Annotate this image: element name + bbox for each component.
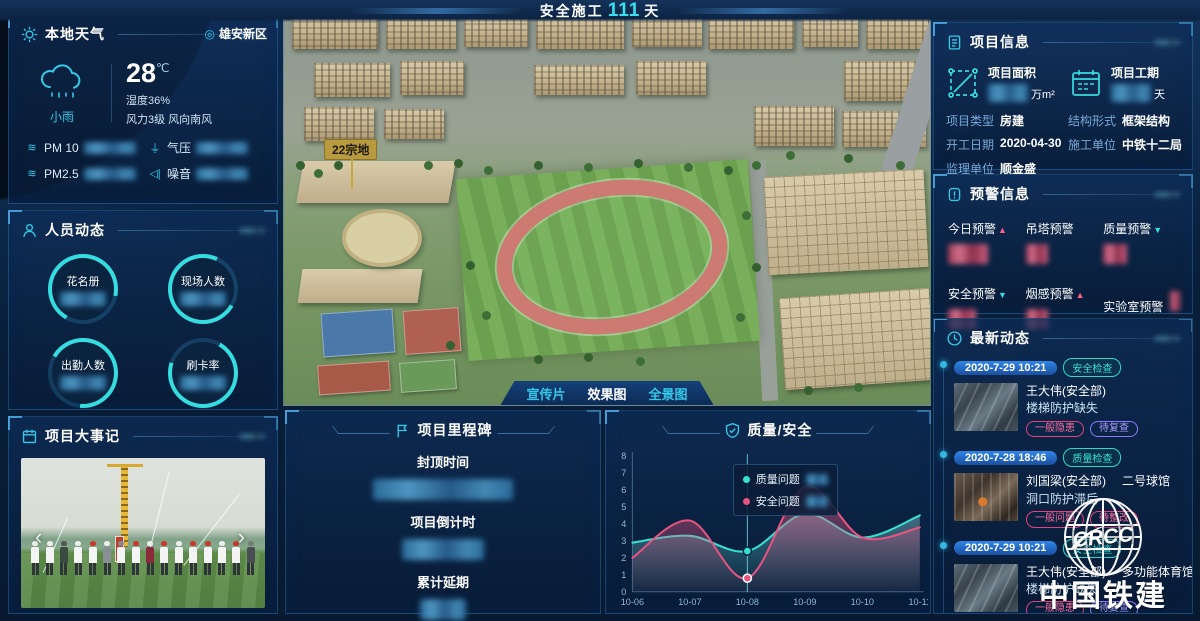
- location-pin-icon: ◎: [205, 27, 215, 41]
- news-title: 最新动态: [970, 328, 1030, 348]
- group-of-people: [31, 541, 256, 583]
- metric-noise: ◁|噪音: [148, 165, 265, 182]
- redacted-value: [806, 496, 828, 507]
- weather-panel: 本地天气 ◎ 雄安新区 小雨 28℃ 湿度36% 风力3级 风向南风 ≋PM 1…: [8, 14, 278, 204]
- header-decoration-right: [677, 8, 850, 14]
- news-category-badge: 质量检查: [1063, 448, 1121, 467]
- quality-safety-chart[interactable]: 01234567810-0610-0710-0810-0910-1010-11 …: [608, 444, 928, 612]
- news-tag-status: 待复查: [1090, 421, 1138, 438]
- metric-pm10: ≋PM 10: [25, 139, 142, 156]
- news-time-badge: 2020-7-28 18:46: [954, 451, 1057, 465]
- redacted-value: [1111, 84, 1151, 102]
- sports-court: [399, 359, 457, 393]
- safe-days-count: 111: [604, 0, 645, 21]
- info-row-contractor: 施工单位中铁十二局: [1068, 136, 1184, 153]
- alert-quality: 质量预警▼: [1103, 220, 1182, 269]
- wind-label: 风力3级 风向南风: [126, 111, 212, 127]
- tower-crane: [121, 464, 128, 547]
- redacted-value: [180, 292, 226, 306]
- circular-plaza: [342, 209, 422, 267]
- person-icon: [21, 222, 38, 239]
- ring-onsite: 现场人数: [168, 254, 238, 324]
- temperature-value: 28℃: [126, 58, 212, 89]
- clock-icon: [946, 330, 963, 347]
- header-decoration: [496, 426, 554, 434]
- header-decoration: [239, 227, 265, 234]
- temperature-unit: ℃: [156, 61, 169, 75]
- event-photo: ‹ ›: [21, 458, 265, 608]
- area-unit: 万m²: [1031, 86, 1055, 102]
- svg-text:10-10: 10-10: [851, 597, 874, 607]
- gym-building: [779, 288, 931, 390]
- view-button-panorama[interactable]: 全景图: [649, 384, 688, 403]
- svg-text:10-07: 10-07: [678, 597, 701, 607]
- redacted-value: [60, 376, 106, 390]
- gym-building: [764, 169, 929, 275]
- svg-text:10-08: 10-08: [736, 597, 759, 607]
- svg-text:10-11: 10-11: [909, 597, 928, 607]
- school-building: [298, 269, 423, 303]
- header-decoration: [1154, 39, 1180, 46]
- trend-up-icon: ▲: [1076, 290, 1085, 300]
- svg-text:CRCC: CRCC: [1072, 523, 1136, 552]
- project-info-title: 项目信息: [970, 32, 1030, 52]
- header-decoration: [1154, 191, 1180, 198]
- alert-today: 今日预警▲: [948, 220, 1020, 269]
- stat-project-area: 项目面积 万m²: [946, 64, 1059, 102]
- rain-cloud-icon: [36, 88, 88, 105]
- view-switcher: 宣传片 效果图 全景图: [500, 381, 713, 405]
- news-tag-severity: 一般隐患: [1026, 421, 1084, 438]
- divider: [111, 64, 112, 122]
- news-category-badge: 安全检查: [1063, 358, 1121, 377]
- svg-text:2: 2: [621, 553, 626, 563]
- redacted-value: [806, 474, 828, 485]
- redacted-value: [1103, 244, 1127, 264]
- personnel-title: 人员动态: [45, 220, 105, 240]
- sun-icon: [21, 26, 38, 43]
- redacted-value: [84, 142, 136, 154]
- milestone-label-topping: 封顶时间: [286, 452, 600, 471]
- redacted-value: [1026, 244, 1048, 264]
- plot-22-label[interactable]: 22宗地: [324, 139, 377, 160]
- quality-safety-title: 质量/安全: [748, 420, 813, 440]
- weather-condition: 小雨: [27, 108, 97, 125]
- legend-quality: 质量问题: [743, 471, 828, 487]
- info-row-structure: 结构形式框架结构: [1068, 112, 1184, 129]
- redacted-value: [1170, 291, 1180, 311]
- speaker-icon: ◁|: [148, 167, 162, 180]
- crcc-logo: CRCC 中国铁建: [1008, 489, 1198, 615]
- alert-crane: 吊塔预警: [1026, 220, 1098, 269]
- news-photo: [954, 383, 1018, 431]
- header-decoration: [239, 433, 265, 440]
- redacted-value: [402, 539, 484, 560]
- basketball-court: [321, 309, 396, 358]
- location-label: 雄安新区: [219, 25, 267, 42]
- header-decoration: [661, 426, 719, 434]
- redacted-value: [196, 168, 248, 180]
- ring-attendance: 出勤人数: [48, 338, 118, 408]
- svg-text:4: 4: [621, 519, 626, 529]
- alert-bell-icon: [946, 186, 963, 203]
- sports-court: [403, 307, 462, 355]
- alerts-title: 预警信息: [970, 184, 1030, 204]
- building-block: [400, 61, 464, 95]
- svg-text:6: 6: [621, 485, 626, 495]
- view-button-promo[interactable]: 宣传片: [526, 384, 565, 403]
- legend-safety: 安全问题: [743, 493, 828, 509]
- header-decoration-left: [350, 8, 523, 14]
- aqi-icon: ≋: [25, 167, 39, 180]
- document-icon: [946, 34, 963, 51]
- crcc-name: 中国铁建: [1008, 571, 1198, 615]
- svg-text:10-09: 10-09: [793, 597, 816, 607]
- svg-text:5: 5: [621, 502, 626, 512]
- news-person: 王大伟(安全部): [1026, 383, 1106, 400]
- project-info-panel: 项目信息 项目面积 万m² 项目工期: [933, 22, 1193, 170]
- pressure-icon: ⏚: [148, 140, 162, 156]
- milestone-title: 项目里程碑: [418, 420, 493, 440]
- info-row-type: 项目类型房建: [946, 112, 1064, 129]
- svg-text:0: 0: [621, 587, 626, 597]
- events-panel: 项目大事记 ‹ ›: [8, 416, 278, 614]
- stat-project-duration: 项目工期 天: [1069, 64, 1182, 102]
- school-building: [296, 161, 455, 203]
- redacted-value: [60, 292, 106, 306]
- safe-days-title: 安全施工111天: [540, 0, 661, 22]
- shield-check-icon: [724, 422, 741, 439]
- ring-card-rate: 刷卡率: [168, 338, 238, 408]
- trend-up-icon: ▲: [998, 225, 1007, 235]
- chart-tooltip: 质量问题 安全问题: [733, 464, 838, 516]
- info-row-start-date: 开工日期2020-04-30: [946, 136, 1064, 153]
- ring-roster: 花名册: [48, 254, 118, 324]
- view-button-render[interactable]: 效果图: [587, 384, 626, 403]
- site-3d-viewport[interactable]: 22宗地 宣传片 效果图 全景图: [283, 10, 931, 406]
- legend-dot-safety: [743, 498, 750, 505]
- milestone-label-delay: 累计延期: [286, 572, 600, 591]
- svg-text:3: 3: [621, 536, 626, 546]
- svg-text:8: 8: [621, 451, 626, 461]
- flag-icon: [394, 422, 411, 439]
- metric-pm25: ≋PM2.5: [25, 165, 142, 182]
- building-block: [636, 61, 706, 95]
- humidity-label: 湿度36%: [126, 92, 212, 108]
- redacted-value: [84, 168, 136, 180]
- header-decoration: [331, 426, 389, 434]
- building-block: [314, 63, 390, 97]
- news-issue: 楼梯防护缺失: [1026, 400, 1138, 417]
- svg-text:1: 1: [621, 570, 626, 580]
- building-block: [304, 107, 374, 141]
- area-measure-icon: [946, 66, 980, 100]
- news-item-1[interactable]: 2020-7-29 10:21 安全检查 王大伟(安全部) 楼梯防护缺失 一般隐…: [954, 358, 1184, 437]
- trend-down-icon: ▼: [998, 290, 1007, 300]
- alerts-panel: 预警信息 今日预警▲ 吊塔预警 质量预警▼ 安全预警▼ 烟感预警▲ 实验室预警: [933, 174, 1193, 314]
- quality-safety-panel: 质量/安全 01234567810-0610-0710-0810-0910-10…: [605, 410, 931, 614]
- aqi-icon: ≋: [25, 141, 39, 154]
- milestone-panel: 项目里程碑 封顶时间 项目倒计时 累计延期: [285, 410, 601, 614]
- redacted-value: [373, 479, 513, 500]
- safe-days-unit: 天: [644, 3, 660, 19]
- calendar-icon: [21, 428, 38, 445]
- calendar-icon: [1069, 66, 1103, 100]
- safe-days-label: 安全施工: [540, 3, 604, 19]
- legend-dot-quality: [743, 476, 750, 483]
- personnel-panel: 人员动态 花名册 现场人数 出勤人数 刷卡率: [8, 210, 278, 410]
- events-title: 项目大事记: [45, 426, 120, 446]
- carousel-prev-button[interactable]: ‹: [35, 526, 42, 548]
- header-decoration: [816, 426, 874, 434]
- duration-unit: 天: [1154, 86, 1165, 102]
- header-decoration: [1154, 335, 1180, 342]
- carousel-next-button[interactable]: ›: [238, 526, 245, 548]
- redacted-value: [988, 84, 1028, 102]
- building-block: [534, 65, 624, 95]
- building-block: [754, 106, 834, 146]
- news-time-badge: 2020-7-29 10:21: [954, 361, 1057, 375]
- redacted-value: [948, 244, 988, 264]
- redacted-value: [420, 599, 466, 620]
- svg-text:7: 7: [621, 468, 626, 478]
- top-header: 安全施工111天: [0, 0, 1200, 22]
- trend-down-icon: ▼: [1153, 225, 1162, 235]
- metric-pressure: ⏚气压: [148, 139, 265, 156]
- redacted-value: [180, 376, 226, 390]
- sports-court: [317, 361, 391, 396]
- svg-text:10-06: 10-06: [621, 597, 644, 607]
- building-block: [384, 109, 444, 139]
- milestone-label-countdown: 项目倒计时: [286, 512, 600, 531]
- location-badge: ◎ 雄安新区: [205, 25, 268, 42]
- weather-title: 本地天气: [45, 24, 105, 44]
- redacted-value: [196, 142, 248, 154]
